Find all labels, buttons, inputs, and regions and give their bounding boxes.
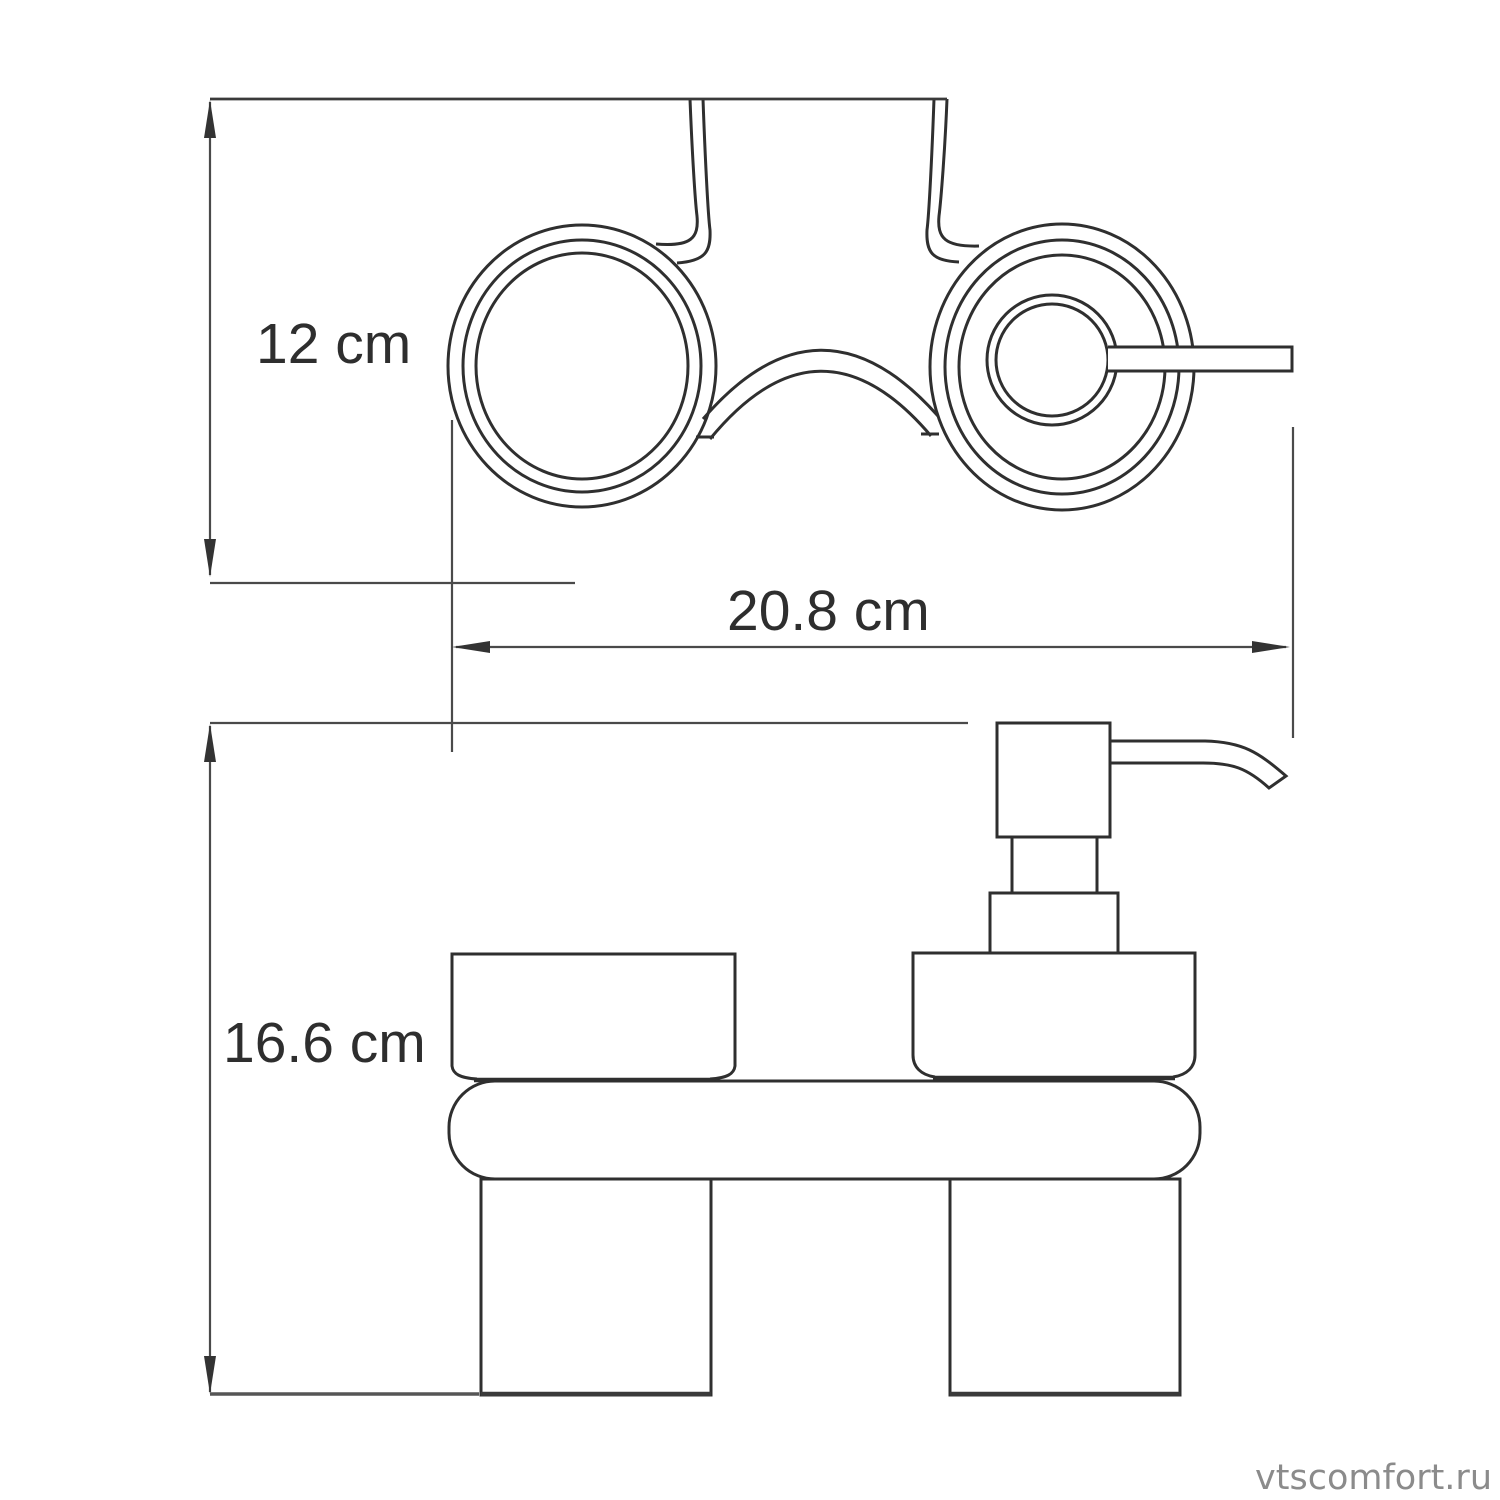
front-view-drawing: [449, 723, 1286, 1395]
arrow-up-icon: [204, 100, 216, 138]
pump-neck: [1012, 837, 1097, 893]
pump-head: [997, 723, 1110, 837]
diagram-page: 12 cm 20.8 cm 16.6 cm vtscomfort.ru: [0, 0, 1500, 1500]
dimension-label-height: 16.6 cm: [223, 1011, 426, 1075]
bottle-lower-cylinder: [950, 1179, 1180, 1395]
dispenser-bottle: [913, 953, 1195, 1077]
dimension-label-width: 20.8 cm: [727, 579, 930, 643]
holder-shelf: [449, 1081, 1200, 1179]
watermark-text: vtscomfort.ru: [1255, 1458, 1492, 1498]
glass-lower-cylinder: [481, 1179, 711, 1395]
arrow-left-icon: [452, 641, 490, 653]
wall-plate-right-edge: [939, 99, 979, 246]
arrow-up-icon: [204, 724, 216, 762]
pump-spout-front: [1110, 741, 1286, 788]
dimension-label-depth: 12 cm: [256, 312, 411, 376]
holder-web: [696, 350, 939, 439]
diagram-canvas: 12 cm 20.8 cm 16.6 cm vtscomfort.ru: [0, 0, 1500, 1500]
arrow-right-icon: [1252, 641, 1290, 653]
arrow-down-icon: [204, 539, 216, 577]
wall-plate-left-edge: [656, 99, 697, 245]
glass-holder-ring: [448, 225, 716, 507]
pump-spout-top: [1108, 347, 1292, 371]
top-view-drawing: [448, 99, 1292, 510]
pump-top-circle: [987, 295, 1117, 425]
pump-collar: [990, 893, 1118, 953]
glass-tumbler: [452, 954, 735, 1079]
arrow-down-icon: [204, 1356, 216, 1394]
